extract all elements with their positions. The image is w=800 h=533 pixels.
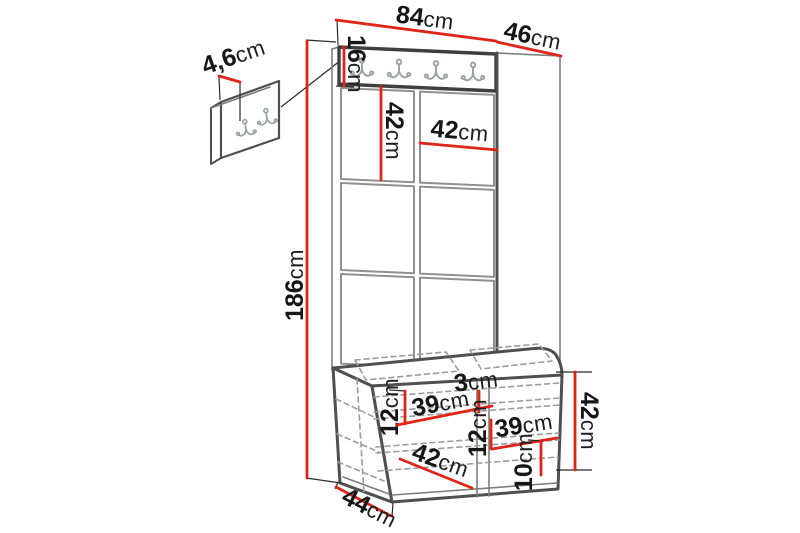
- dim-label-42cm-bench: 42cm: [575, 392, 603, 450]
- dimension-diagram: 84cm 46cm 16cm 42cm 42cm 186cm 3cm: [0, 0, 800, 533]
- dim-label-84cm: 84cm: [394, 0, 455, 35]
- tall-panel-unit: [332, 47, 560, 372]
- dim-label-12cm-middle: 12cm: [464, 399, 492, 457]
- dim-label-186cm: 186cm: [281, 249, 309, 321]
- dim-panel-depth-46: 46cm: [497, 16, 564, 56]
- dim-label-12cm-left: 12cm: [376, 378, 404, 436]
- detail-panel-side-face: [211, 102, 221, 164]
- dim-label-4-6cm: 4,6cm: [198, 33, 269, 81]
- dim-label-42cm-vertical: 42cm: [380, 102, 408, 160]
- detail-panel-front-face: [221, 81, 279, 158]
- dim-label-16cm: 16cm: [342, 35, 370, 93]
- dim-label-10cm: 10cm: [510, 433, 538, 491]
- wall-hook-panel-detail: [211, 81, 279, 164]
- dim-left-inner-height-12: 12cm: [376, 378, 406, 436]
- panel-right-side: [497, 53, 560, 372]
- dimension-diagram-page: 84cm 46cm 16cm 42cm 42cm 186cm 3cm: [0, 0, 800, 533]
- dim-middle-inner-height-12: 12cm: [464, 399, 492, 457]
- leader-line: [281, 57, 345, 107]
